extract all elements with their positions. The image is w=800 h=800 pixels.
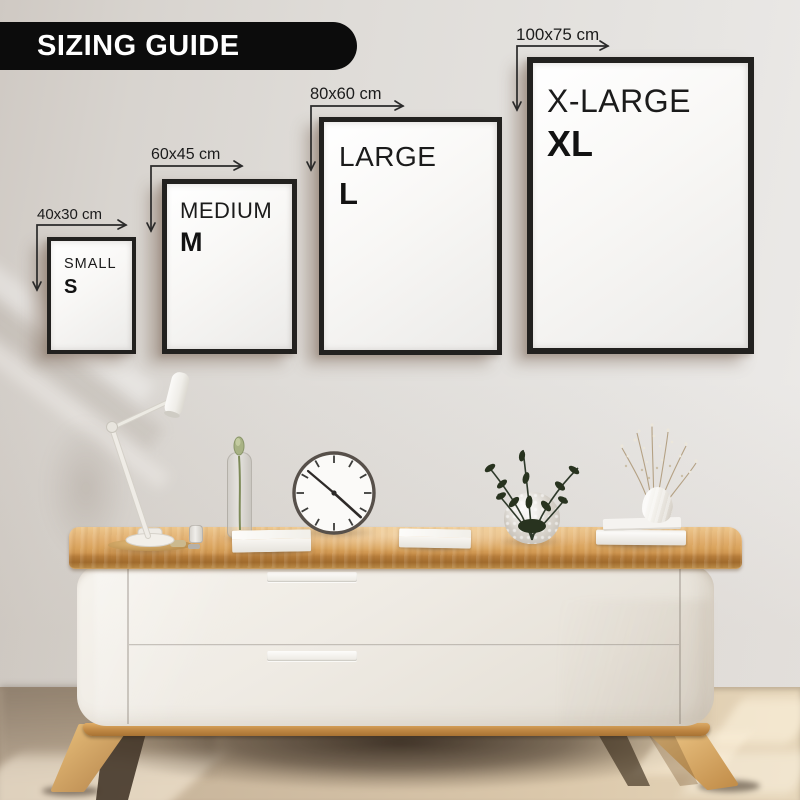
foliage-icon bbox=[468, 436, 596, 548]
desk-lamp-icon bbox=[88, 368, 203, 553]
flower-stem-icon bbox=[227, 430, 252, 536]
dimension-label-small: 40x30 cm bbox=[37, 206, 102, 223]
white-ceramic-vase bbox=[642, 487, 673, 523]
frame-medium-name: MEDIUM bbox=[180, 197, 292, 225]
book-flat bbox=[399, 528, 471, 548]
frame-small-abbr: S bbox=[64, 276, 132, 298]
dimension-label-medium: 60x45 cm bbox=[151, 146, 220, 164]
dimension-label-large: 80x60 cm bbox=[310, 85, 382, 104]
sideboard-seam-right bbox=[679, 567, 681, 724]
frame-medium-abbr: M bbox=[180, 228, 292, 258]
stacked-book bbox=[596, 530, 686, 546]
sizing-guide-banner: SIZING GUIDE bbox=[0, 22, 357, 70]
frame-large: LARGE L bbox=[319, 117, 502, 355]
frame-large-name: LARGE bbox=[339, 139, 497, 174]
back-right-leg bbox=[598, 734, 650, 786]
frame-small-name: SMALL bbox=[64, 255, 132, 273]
drawer-handle-bottom bbox=[267, 651, 357, 661]
sizing-guide-image: SMALL S MEDIUM M LARGE L X-LARGE XL 40x3… bbox=[0, 0, 800, 800]
frame-xlarge: X-LARGE XL bbox=[527, 57, 754, 354]
frame-large-abbr: L bbox=[339, 177, 497, 211]
wall-clock-icon bbox=[291, 450, 377, 536]
drawer-divider bbox=[129, 644, 679, 646]
frame-small: SMALL S bbox=[47, 237, 136, 354]
sideboard-body-shade bbox=[560, 600, 710, 725]
frame-xlarge-name: X-LARGE bbox=[547, 81, 748, 121]
drawer-handle-top bbox=[267, 572, 357, 582]
banner-title: SIZING GUIDE bbox=[37, 30, 240, 63]
dimension-label-xlarge: 100x75 cm bbox=[516, 25, 599, 45]
frame-medium: MEDIUM M bbox=[162, 179, 297, 354]
frame-xlarge-abbr: XL bbox=[547, 124, 748, 164]
sideboard-body-highlight bbox=[95, 570, 295, 722]
